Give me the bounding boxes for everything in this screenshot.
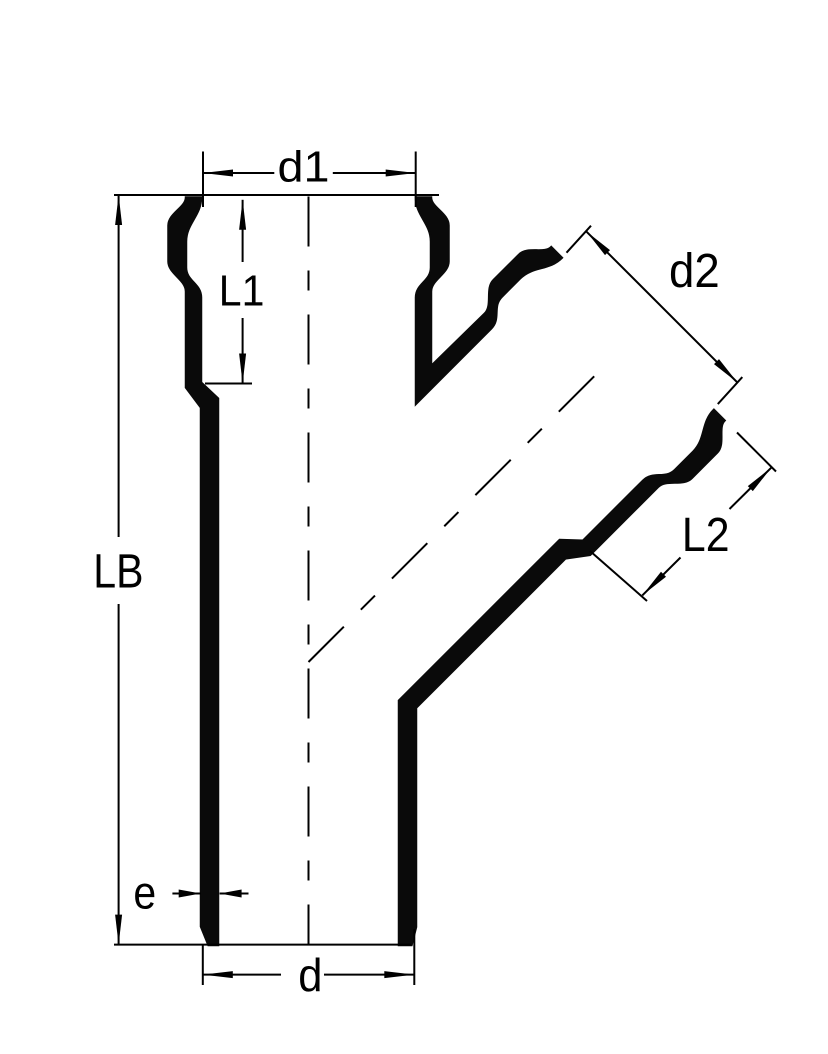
svg-text:e: e: [133, 866, 156, 918]
svg-text:d: d: [298, 949, 322, 1001]
svg-text:d1: d1: [278, 142, 330, 191]
svg-text:LB: LB: [93, 546, 143, 599]
svg-text:L1: L1: [219, 267, 265, 316]
svg-text:d2: d2: [669, 245, 720, 298]
svg-text:L2: L2: [682, 509, 730, 562]
